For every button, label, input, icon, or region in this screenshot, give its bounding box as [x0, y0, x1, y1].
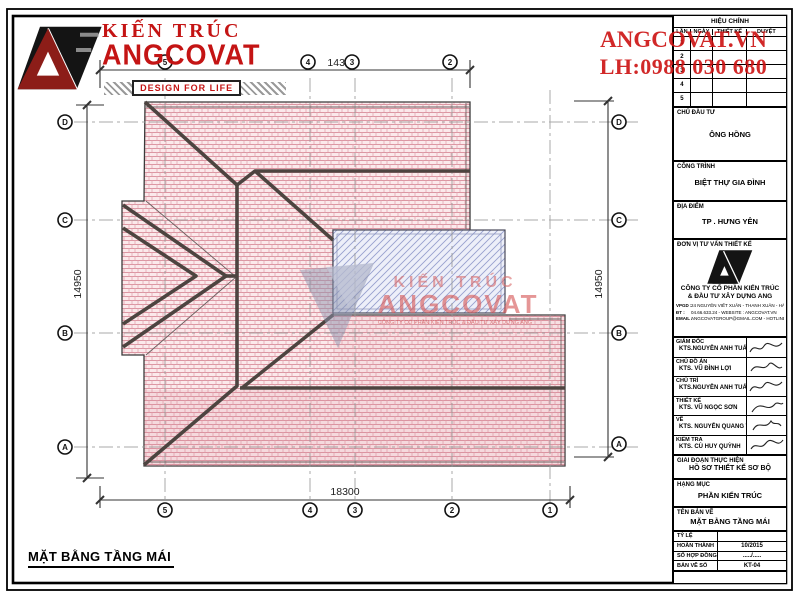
- brand-logo: KIẾN TRÚC ANGCOVAT DESIGN FOR LIFE: [14, 20, 274, 112]
- contact-overlay: ANGCOVAT.VN LH:0988 030 680: [586, 26, 781, 80]
- section-category: HẠNG MỤC PHẦN KIẾN TRÚC: [674, 480, 786, 508]
- personnel-row: CHỦ TRÌ KTS.NGUYỄN ANH TUẤN: [674, 377, 786, 397]
- revision-row: 5: [674, 93, 786, 106]
- location-label: ĐỊA ĐIỂM: [674, 202, 786, 210]
- phase-value: HỒ SƠ THIẾT KẾ SƠ BỘ: [674, 465, 786, 472]
- personnel-row: GIÁM ĐỐC KTS.NGUYỄN ANH TUẤN: [674, 338, 786, 358]
- personnel-table: GIÁM ĐỐC KTS.NGUYỄN ANH TUẤN CHỦ ĐỒ ÁN K…: [674, 338, 786, 456]
- section-location: ĐỊA ĐIỂM TP . HƯNG YÊN: [674, 202, 786, 240]
- svg-text:4: 4: [306, 58, 311, 67]
- dim-bottom: 18300: [330, 486, 359, 498]
- personnel-row: THIẾT KẾ KTS. VŨ NGỌC SƠN: [674, 397, 786, 417]
- consultant-address-row: EMAIL : ANGCOVATGROUP@GMAIL.COM - HOTLIN…: [674, 316, 786, 323]
- phase-label: GIAI ĐOẠN THỰC HIỆN: [674, 456, 786, 464]
- category-value: PHẦN KIẾN TRÚC: [674, 491, 786, 500]
- brand-tagline: DESIGN FOR LIFE: [132, 80, 241, 96]
- signature: [747, 358, 786, 377]
- hatch-band-right: [241, 82, 286, 95]
- svg-text:2: 2: [450, 506, 455, 515]
- info-row-contract: SỐ HỢP ĐỒNG ...../.....: [674, 552, 786, 562]
- sheet-title-value: MẶT BẰNG TẦNG MÁI: [674, 517, 786, 526]
- consultant-logo-icon: [705, 249, 755, 285]
- sheet-title-label: TÊN BẢN VẼ: [674, 508, 786, 516]
- consultant-company-line1: CÔNG TY CỔ PHẦN KIẾN TRÚC: [674, 285, 786, 293]
- personnel-row: VẼ KTS. NGUYỄN QUANG THÁI: [674, 416, 786, 436]
- info-row-sheet-number: BẢN VẼ SỐ KT-04: [674, 561, 786, 570]
- section-phase: GIAI ĐOẠN THỰC HIỆN HỒ SƠ THIẾT KẾ SƠ BỘ: [674, 456, 786, 480]
- signature: [747, 397, 786, 416]
- hatch-band-left: [104, 82, 132, 95]
- section-consultant: ĐƠN VỊ TƯ VẤN THIẾT KẾ CÔNG TY CỔ PHẦN K…: [674, 240, 786, 338]
- svg-text:C: C: [616, 216, 622, 225]
- angcovat-logo-icon: [16, 24, 104, 92]
- svg-text:D: D: [62, 118, 68, 127]
- signature: [747, 377, 786, 396]
- personnel-row: CHỦ ĐỒ ÁN KTS. VŨ ĐÌNH LỢI: [674, 358, 786, 378]
- personnel-row: KIỂM TRA KTS. CÙ HUY QUỲNH: [674, 436, 786, 455]
- svg-text:3: 3: [353, 506, 358, 515]
- client-label: CHỦ ĐẦU TƯ: [674, 108, 786, 116]
- consultant-label: ĐƠN VỊ TƯ VẤN THIẾT KẾ: [674, 240, 786, 248]
- location-value: TP . HƯNG YÊN: [674, 217, 786, 226]
- title-block: HIỆU CHỈNH LẦN NGÀY THIẾT KẾ DUYỆT 1 2 3…: [672, 16, 786, 583]
- project-value: BIỆT THỰ GIA ĐÌNH: [674, 178, 786, 187]
- svg-text:C: C: [62, 216, 68, 225]
- signature: [747, 436, 786, 455]
- dim-left: 14950: [72, 269, 84, 298]
- svg-text:D: D: [616, 118, 622, 127]
- category-label: HẠNG MỤC: [674, 480, 786, 488]
- svg-text:4: 4: [308, 506, 313, 515]
- watermark-company-line: CÔNG TY CỔ PHẦN KIẾN TRÚC & ĐẦU TƯ XÂY D…: [378, 319, 532, 326]
- project-label: CÔNG TRÌNH: [674, 162, 786, 170]
- contact-website: ANGCOVAT.VN: [586, 26, 781, 53]
- brand-tagline-row: DESIGN FOR LIFE: [104, 80, 286, 96]
- sheet-info-table: TỶ LỆ HOÀN THÀNH 10/2015 SỐ HỢP ĐỒNG ...…: [674, 532, 786, 572]
- brand-name-main: ANGCOVAT: [102, 39, 261, 72]
- section-client: CHỦ ĐẦU TƯ ÔNG HỒNG: [674, 108, 786, 162]
- info-row-completed: HOÀN THÀNH 10/2015: [674, 542, 786, 552]
- client-value: ÔNG HỒNG: [674, 130, 786, 139]
- consultant-company-line2: & ĐẦU TƯ XÂY DỰNG ANG: [674, 293, 786, 301]
- contact-phone: LH:0988 030 680: [586, 53, 781, 80]
- info-row-scale: TỶ LỆ: [674, 532, 786, 542]
- dim-right: 14950: [593, 269, 605, 298]
- section-sheet-title: TÊN BẢN VẼ MẶT BẰNG TẦNG MÁI: [674, 508, 786, 532]
- svg-text:3: 3: [350, 58, 355, 67]
- section-project: CÔNG TRÌNH BIỆT THỰ GIA ĐÌNH: [674, 162, 786, 202]
- svg-text:1: 1: [548, 506, 553, 515]
- svg-text:A: A: [62, 443, 68, 452]
- svg-text:B: B: [62, 329, 68, 338]
- revision-row: 4: [674, 79, 786, 93]
- svg-text:5: 5: [163, 506, 168, 515]
- svg-text:B: B: [616, 329, 622, 338]
- drawing-sheet: { "sheet": { "logo": { "brand_top": "KIẾ…: [0, 0, 799, 600]
- middle-band-shade: [333, 315, 565, 390]
- svg-text:A: A: [616, 440, 622, 449]
- svg-text:2: 2: [448, 58, 453, 67]
- signature: [747, 416, 786, 435]
- drawing-title-label: MẶT BẰNG TẦNG MÁI: [28, 549, 174, 568]
- watermark-brand-main: ANGCOVAT: [378, 289, 539, 319]
- signature: [747, 338, 786, 357]
